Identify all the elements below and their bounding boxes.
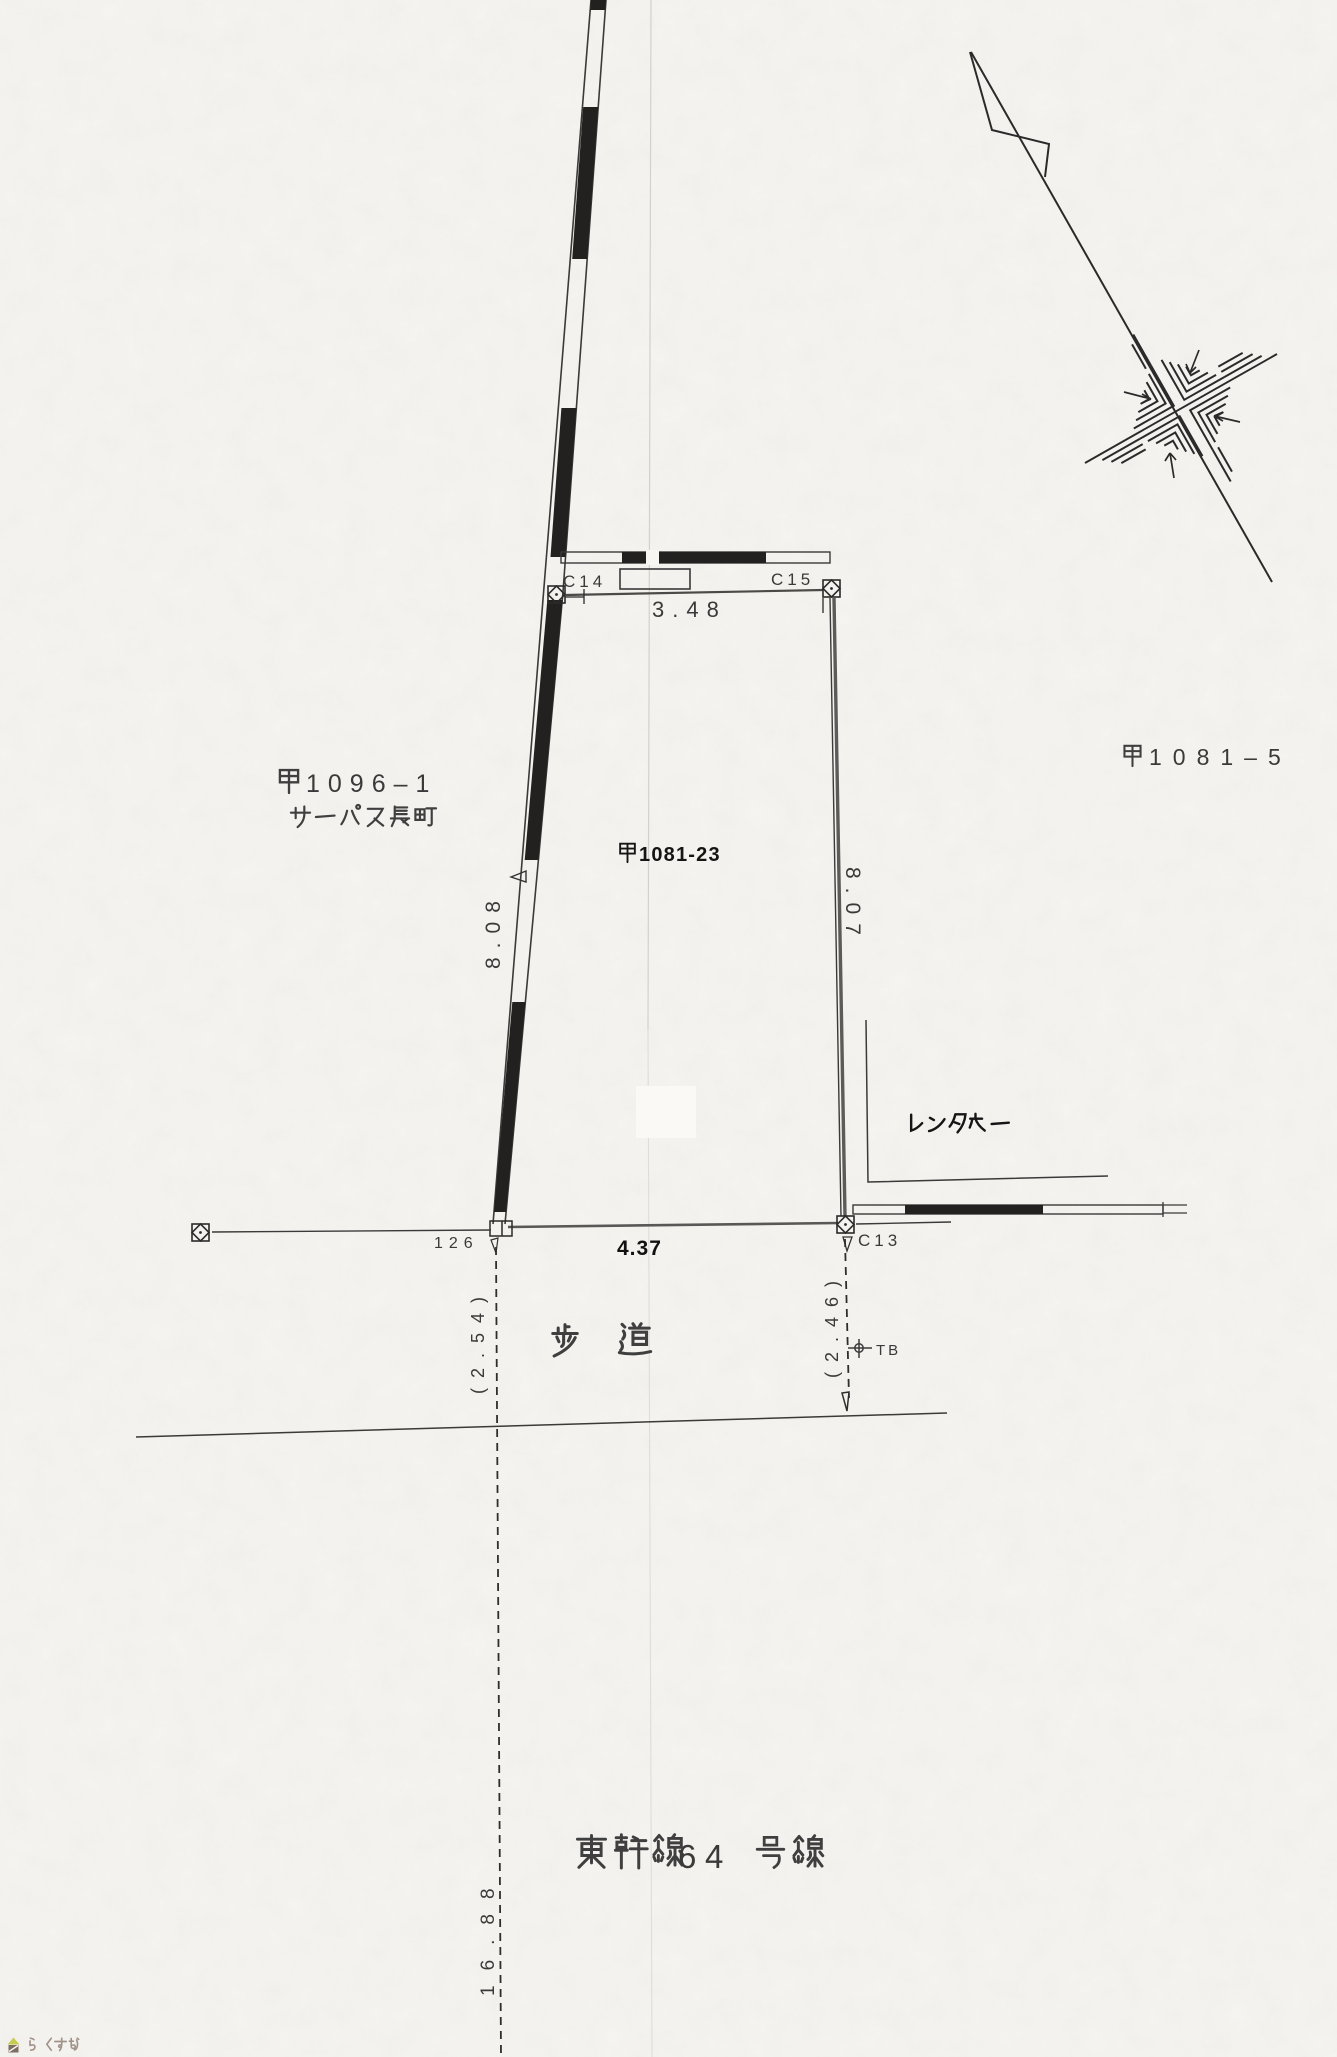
svg-text:126: 126: [434, 1235, 479, 1252]
svg-text:6: 6: [678, 1838, 696, 1875]
svg-text:TB: TB: [876, 1342, 901, 1359]
svg-text:1081-23: 1081-23: [639, 844, 721, 866]
svg-text:C15: C15: [771, 570, 814, 589]
svg-text:4.37: 4.37: [617, 1237, 662, 1260]
svg-text:8.08: 8.08: [482, 892, 505, 969]
svg-text:1081–5: 1081–5: [1149, 744, 1292, 770]
svg-text:C13: C13: [858, 1231, 901, 1250]
svg-text:8.07: 8.07: [841, 867, 864, 944]
svg-text:C14: C14: [563, 572, 606, 591]
svg-text:1096–1: 1096–1: [306, 770, 437, 798]
svg-text:3.48: 3.48: [652, 597, 727, 622]
svg-text:4: 4: [705, 1838, 723, 1875]
svg-text:(2.54): (2.54): [468, 1287, 488, 1394]
svg-text:16.88: 16.88: [478, 1873, 499, 1996]
svg-text:(2.46): (2.46): [822, 1271, 842, 1378]
